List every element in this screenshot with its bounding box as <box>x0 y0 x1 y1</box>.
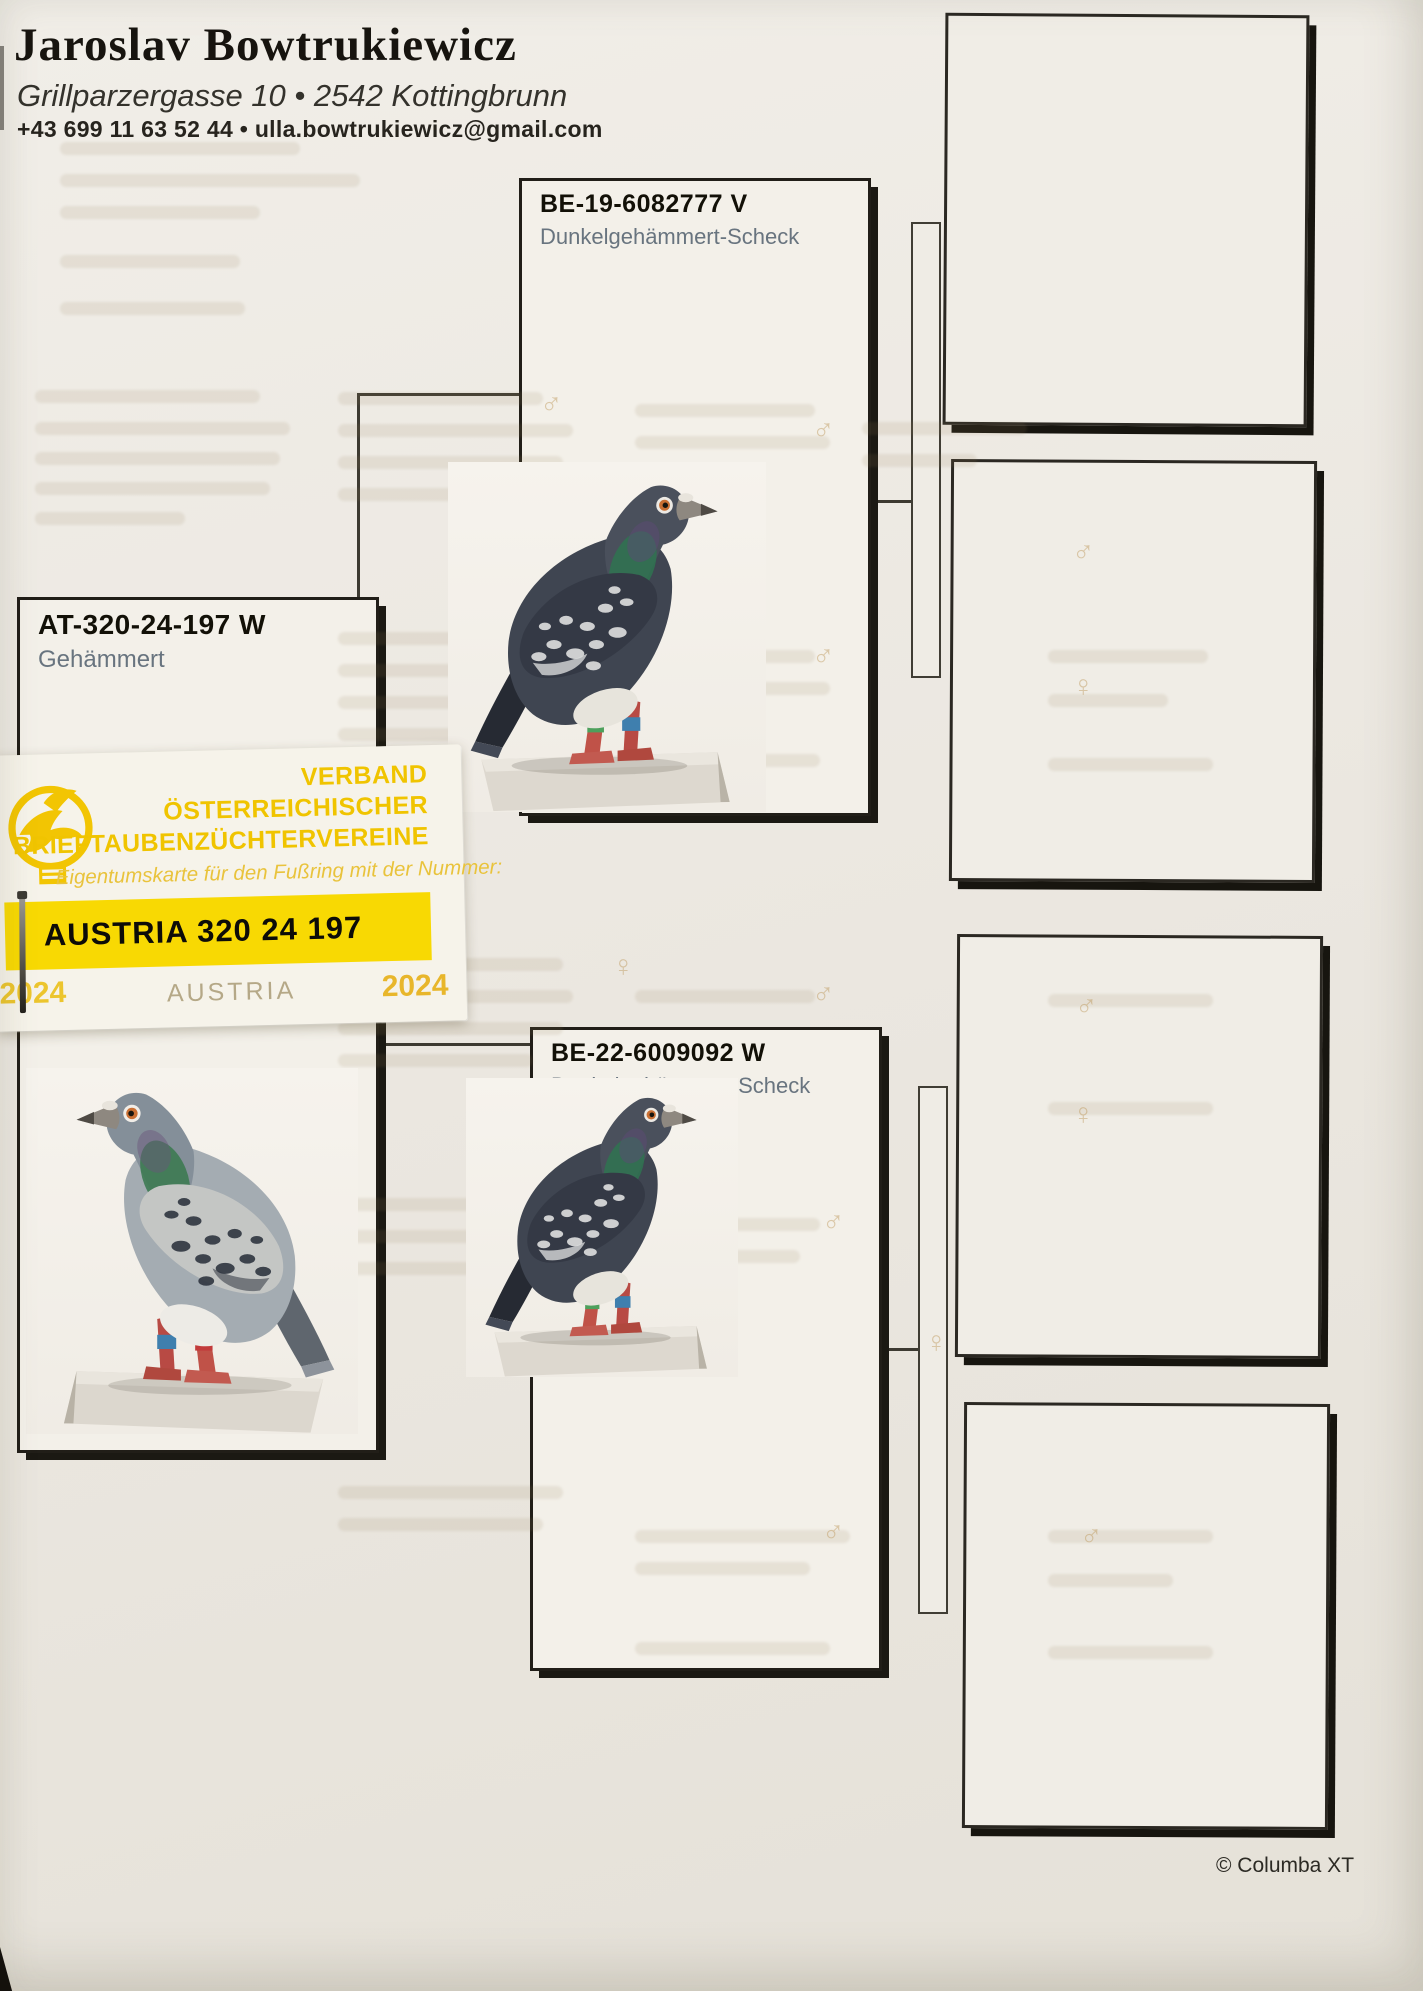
pigeon-image <box>448 462 766 812</box>
organisation-name: VERBAND ÖSTERREICHISCHER BRIEFTAUBENZÜCH… <box>11 759 429 862</box>
scan-edge-artifact <box>0 46 4 130</box>
father-ring-number: BE-19-6082777 V <box>540 190 868 219</box>
ghost-gender-symbol: ♂ <box>812 978 835 1012</box>
grandparent-box-4 <box>962 1402 1330 1830</box>
pin-graphic <box>19 895 26 1013</box>
pedigree-connector-line <box>357 393 360 599</box>
pigeon-image <box>466 1078 738 1377</box>
father-pigeon-photo <box>448 462 766 812</box>
main-variety: Gehämmert <box>38 646 376 674</box>
mother-pigeon-photo <box>466 1078 738 1377</box>
pedigree-scan-page: Jaroslav Bowtrukiewicz Grillparzergasse … <box>0 0 1423 1991</box>
ownership-card: VERBAND ÖSTERREICHISCHER BRIEFTAUBENZÜCH… <box>0 744 467 1031</box>
pigeon-image <box>26 1068 358 1434</box>
year-right: 2024 <box>381 969 449 1005</box>
main-ring-number: AT-320-24-197 W <box>38 609 376 641</box>
breeder-name: Jaroslav Bowtrukiewicz <box>14 18 517 72</box>
ghost-gender-symbol: ♀ <box>612 950 635 984</box>
breeder-address: Grillparzergasse 10 • 2542 Kottingbrunn <box>17 78 567 114</box>
grandparent-box-2 <box>949 459 1317 883</box>
pedigree-connector-line <box>357 393 519 396</box>
main-pigeon-photo <box>26 1068 358 1434</box>
ownership-subtitle: Eigentumskarte für den Fußring mit der N… <box>55 855 502 890</box>
grandparent-box-3 <box>955 934 1323 1359</box>
pedigree-connector-line <box>877 1348 920 1351</box>
pedigree-bracket-mother <box>918 1086 948 1614</box>
scan-corner-artifact <box>0 1947 22 1991</box>
mother-ring-number: BE-22-6009092 W <box>551 1039 879 1068</box>
ring-number-bar: AUSTRIA 320 24 197 <box>4 892 432 970</box>
software-copyright: © Columba XT <box>1216 1854 1354 1878</box>
breeder-contact: +43 699 11 63 52 44 • ulla.bowtrukiewicz… <box>17 116 603 143</box>
pedigree-connector-line <box>385 1043 530 1046</box>
pedigree-connector-line <box>866 500 913 503</box>
father-variety: Dunkelgehämmert-Scheck <box>540 224 868 250</box>
grandparent-box-1 <box>943 13 1310 428</box>
pedigree-bracket-father <box>911 222 941 678</box>
